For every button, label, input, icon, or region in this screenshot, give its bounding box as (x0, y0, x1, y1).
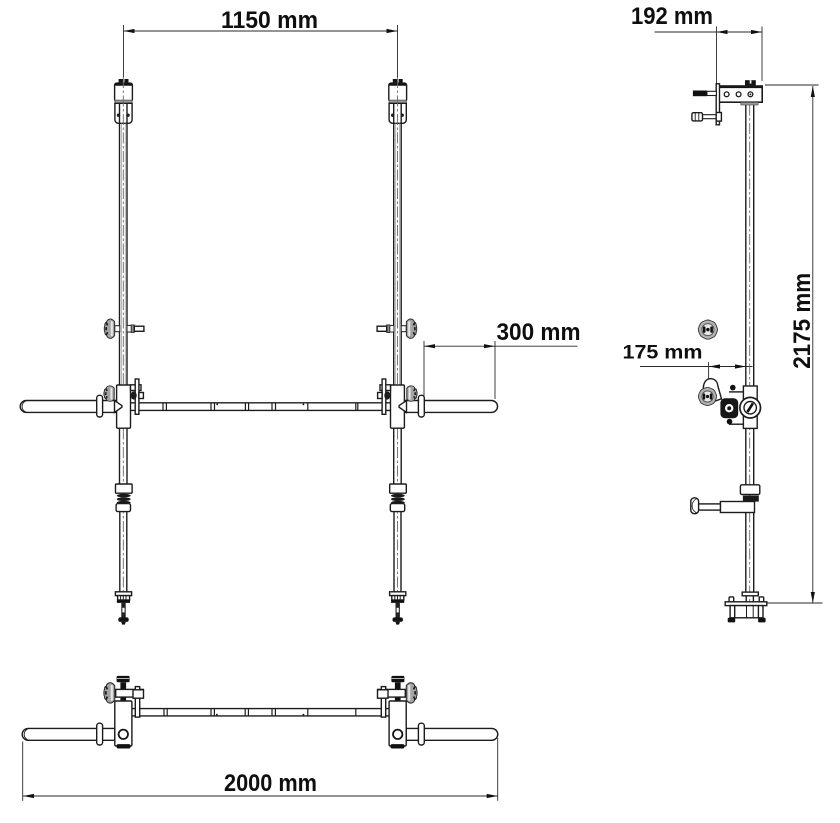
svg-text:175 mm: 175 mm (623, 342, 703, 364)
svg-text:2175 mm: 2175 mm (789, 273, 816, 369)
svg-text:2000 mm: 2000 mm (224, 770, 317, 797)
svg-text:192 mm: 192 mm (631, 3, 713, 30)
svg-text:1150 mm: 1150 mm (221, 7, 318, 34)
svg-text:300 mm: 300 mm (497, 319, 581, 346)
